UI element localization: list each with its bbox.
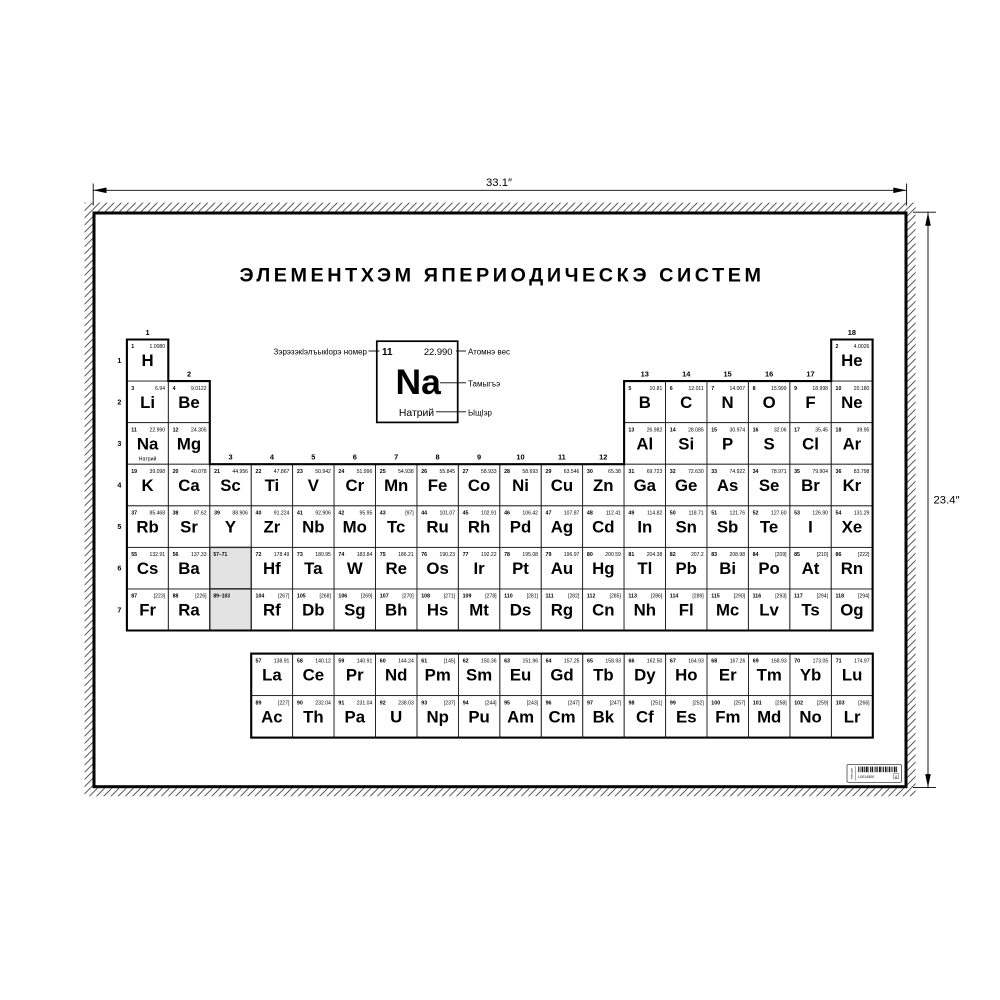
svg-text:126.90: 126.90	[812, 511, 828, 517]
svg-text:7: 7	[711, 386, 714, 392]
svg-text:39.098: 39.098	[150, 469, 166, 475]
svg-text:L0014500: L0014500	[858, 775, 874, 779]
svg-text:39.95: 39.95	[857, 427, 870, 433]
svg-text:[269]: [269]	[361, 594, 373, 600]
svg-text:1: 1	[117, 356, 121, 365]
svg-text:95.95: 95.95	[360, 511, 373, 517]
svg-text:Cu: Cu	[551, 476, 573, 495]
svg-text:40: 40	[256, 511, 262, 517]
svg-text:H: H	[142, 351, 154, 370]
svg-text:Pr: Pr	[346, 665, 364, 684]
svg-text:150.36: 150.36	[481, 658, 497, 664]
svg-text:Cl: Cl	[802, 434, 819, 453]
svg-text:[290]: [290]	[734, 594, 746, 600]
svg-text:Rn: Rn	[841, 559, 863, 578]
svg-text:79.904: 79.904	[812, 469, 828, 475]
svg-text:23: 23	[297, 469, 303, 475]
svg-text:60: 60	[380, 658, 386, 664]
svg-text:Тамыгъэ: Тамыгъэ	[468, 380, 500, 389]
svg-text:9: 9	[477, 453, 481, 462]
svg-text:F: F	[805, 393, 815, 412]
svg-text:Pt: Pt	[512, 559, 529, 578]
svg-text:Br: Br	[801, 476, 820, 495]
svg-text:50: 50	[670, 511, 676, 517]
svg-text:W: W	[347, 559, 363, 578]
svg-text:45: 45	[463, 511, 469, 517]
svg-text:[286]: [286]	[651, 594, 663, 600]
svg-text:Bi: Bi	[719, 559, 736, 578]
svg-text:87: 87	[131, 594, 137, 600]
svg-text:Og: Og	[840, 601, 863, 620]
svg-text:30.974: 30.974	[730, 427, 746, 433]
svg-text:192.22: 192.22	[481, 552, 497, 558]
svg-text:Tm: Tm	[757, 665, 782, 684]
svg-text:85: 85	[794, 552, 800, 558]
svg-text:Yb: Yb	[800, 665, 821, 684]
svg-text:Ru: Ru	[426, 518, 448, 537]
svg-text:111: 111	[546, 594, 554, 600]
svg-text:55: 55	[131, 552, 137, 558]
svg-text:84: 84	[753, 552, 759, 558]
svg-text:[258]: [258]	[775, 700, 787, 706]
svg-text:78.971: 78.971	[771, 469, 787, 475]
svg-text:[222]: [222]	[858, 552, 870, 558]
svg-text:Ta: Ta	[304, 559, 323, 578]
svg-text:Fl: Fl	[679, 601, 694, 620]
svg-text:Ca: Ca	[178, 476, 200, 495]
svg-text:116: 116	[753, 594, 762, 600]
svg-text:70: 70	[794, 658, 800, 664]
svg-text:121.76: 121.76	[730, 511, 746, 517]
svg-text:11: 11	[382, 347, 393, 358]
svg-text:10: 10	[516, 453, 524, 462]
svg-text:74.922: 74.922	[730, 469, 746, 475]
svg-text:[289]: [289]	[692, 594, 704, 600]
svg-text:68: 68	[711, 658, 717, 664]
svg-text:Nb: Nb	[302, 518, 324, 537]
svg-text:66: 66	[629, 658, 635, 664]
svg-text:[259]: [259]	[817, 700, 829, 706]
svg-text:64: 64	[546, 658, 552, 664]
svg-text:Pb: Pb	[675, 559, 696, 578]
svg-text:22.990: 22.990	[150, 427, 166, 433]
svg-text:5: 5	[628, 386, 631, 392]
svg-text:58: 58	[297, 658, 303, 664]
svg-text:Ыщlэр: Ыщlэр	[468, 409, 493, 418]
svg-text:158.93: 158.93	[605, 658, 621, 664]
svg-text:103: 103	[836, 700, 845, 706]
svg-text:[257]: [257]	[734, 700, 746, 706]
svg-text:7: 7	[394, 453, 398, 462]
svg-text:51: 51	[711, 511, 717, 517]
svg-text:17: 17	[794, 427, 800, 433]
svg-text:63.546: 63.546	[564, 469, 580, 475]
svg-text:118: 118	[836, 594, 845, 600]
svg-text:Sm: Sm	[466, 665, 492, 684]
svg-text:V: V	[308, 476, 320, 495]
svg-text:[266]: [266]	[858, 700, 870, 706]
svg-text:As: As	[717, 476, 738, 495]
svg-text:[252]: [252]	[692, 700, 704, 706]
svg-text:[281]: [281]	[527, 594, 539, 600]
svg-text:12.011: 12.011	[688, 386, 703, 392]
svg-text:Nh: Nh	[634, 601, 656, 620]
svg-text:Si: Si	[678, 434, 694, 453]
svg-text:13: 13	[628, 427, 634, 433]
svg-text:Зэрэзэкlэлъыкlорэ номер: Зэрэзэкlэлъыкlорэ номер	[274, 348, 368, 357]
svg-text:58.933: 58.933	[481, 469, 497, 475]
svg-text:33: 33	[711, 469, 717, 475]
svg-text:57: 57	[256, 658, 262, 664]
svg-text:89–103: 89–103	[213, 594, 230, 600]
svg-text:Cm: Cm	[548, 707, 575, 726]
svg-text:47: 47	[546, 511, 552, 517]
svg-text:127.60: 127.60	[771, 511, 787, 517]
svg-text:Na: Na	[396, 362, 442, 402]
svg-text:54: 54	[836, 511, 842, 517]
svg-text:Pu: Pu	[468, 707, 489, 726]
svg-text:He: He	[841, 351, 862, 370]
svg-text:71: 71	[836, 658, 842, 664]
svg-text:238.03: 238.03	[398, 700, 414, 706]
svg-text:96: 96	[546, 700, 552, 706]
svg-text:La: La	[262, 665, 282, 684]
svg-text:115: 115	[711, 594, 720, 600]
svg-text:102.91: 102.91	[481, 511, 497, 517]
svg-text:Gd: Gd	[550, 665, 573, 684]
svg-text:Ne: Ne	[841, 393, 862, 412]
svg-text:U: U	[390, 707, 402, 726]
svg-text:49: 49	[628, 511, 634, 517]
svg-text:Na: Na	[137, 434, 159, 453]
svg-text:Ni: Ni	[512, 476, 529, 495]
svg-text:Cr: Cr	[345, 476, 364, 495]
svg-text:200.59: 200.59	[605, 552, 621, 558]
svg-text:6: 6	[670, 386, 673, 392]
svg-text:Dy: Dy	[634, 665, 656, 684]
svg-text:32.06: 32.06	[774, 427, 787, 433]
svg-text:5: 5	[117, 522, 121, 531]
svg-text:Te: Te	[760, 518, 778, 537]
svg-text:24.305: 24.305	[191, 427, 207, 433]
svg-text:8: 8	[753, 386, 756, 392]
svg-text:77: 77	[463, 552, 469, 558]
svg-text:101.07: 101.07	[440, 511, 456, 517]
svg-text:Y: Y	[225, 518, 236, 537]
svg-text:K: K	[142, 476, 154, 495]
svg-text:11: 11	[131, 427, 137, 433]
svg-text:Ts: Ts	[801, 601, 819, 620]
svg-text:No: No	[799, 707, 821, 726]
svg-text:barcode: barcode	[849, 768, 853, 779]
svg-text:168.93: 168.93	[771, 658, 787, 664]
svg-text:59: 59	[338, 658, 344, 664]
svg-text:30: 30	[587, 469, 593, 475]
svg-text:58.693: 58.693	[522, 469, 538, 475]
svg-text:72: 72	[256, 552, 262, 558]
svg-text:118.71: 118.71	[688, 511, 703, 517]
svg-text:5: 5	[311, 453, 315, 462]
svg-text:Au: Au	[551, 559, 573, 578]
svg-text:35.45: 35.45	[815, 427, 828, 433]
svg-text:Bh: Bh	[385, 601, 407, 620]
svg-text:[237]: [237]	[444, 700, 456, 706]
svg-text:51.996: 51.996	[357, 469, 373, 475]
svg-text:Cf: Cf	[636, 707, 654, 726]
svg-text:144.24: 144.24	[398, 658, 414, 664]
svg-text:20.180: 20.180	[854, 386, 870, 392]
svg-text:[251]: [251]	[651, 700, 663, 706]
svg-text:117: 117	[794, 594, 803, 600]
svg-text:26.982: 26.982	[647, 427, 663, 433]
svg-text:Fm: Fm	[715, 707, 740, 726]
svg-text:Sc: Sc	[220, 476, 241, 495]
svg-text:6: 6	[117, 564, 121, 573]
svg-text:Se: Se	[759, 476, 780, 495]
svg-text:112: 112	[587, 594, 596, 600]
svg-text:Co: Co	[468, 476, 490, 495]
svg-text:15: 15	[711, 427, 717, 433]
svg-text:Ho: Ho	[675, 665, 697, 684]
svg-text:174.97: 174.97	[854, 658, 870, 664]
svg-text:108: 108	[421, 594, 430, 600]
svg-text:1: 1	[131, 344, 134, 350]
svg-text:93: 93	[421, 700, 427, 706]
svg-text:178.49: 178.49	[274, 552, 290, 558]
svg-text:44: 44	[421, 511, 427, 517]
svg-text:Ir: Ir	[473, 559, 485, 578]
svg-text:Натрий: Натрий	[399, 408, 434, 419]
svg-text:132.91: 132.91	[150, 552, 166, 558]
svg-text:[267]: [267]	[278, 594, 290, 600]
svg-text:[282]: [282]	[568, 594, 580, 600]
svg-text:12: 12	[599, 453, 607, 462]
svg-text:Li: Li	[140, 393, 155, 412]
svg-text:29: 29	[546, 469, 552, 475]
svg-text:[226]: [226]	[195, 594, 207, 600]
svg-text:109: 109	[463, 594, 472, 600]
svg-text:Rh: Rh	[468, 518, 490, 537]
svg-text:Am: Am	[507, 707, 534, 726]
svg-text:80: 80	[587, 552, 593, 558]
svg-text:Ba: Ba	[178, 559, 200, 578]
svg-text:Hg: Hg	[592, 559, 614, 578]
svg-text:Sb: Sb	[717, 518, 738, 537]
svg-text:P: P	[722, 434, 733, 453]
svg-text:114.82: 114.82	[647, 511, 662, 517]
svg-text:79: 79	[546, 552, 552, 558]
svg-text:16: 16	[753, 427, 759, 433]
svg-text:Mt: Mt	[469, 601, 489, 620]
svg-text:11: 11	[558, 453, 566, 462]
svg-text:3: 3	[117, 439, 121, 448]
svg-text:232.04: 232.04	[315, 700, 331, 706]
svg-text:Lv: Lv	[759, 601, 779, 620]
svg-text:6: 6	[353, 453, 357, 462]
svg-text:92.906: 92.906	[315, 511, 331, 517]
svg-text:91: 91	[338, 700, 344, 706]
svg-text:151.96: 151.96	[523, 658, 539, 664]
svg-text:Tb: Tb	[593, 665, 614, 684]
svg-text:[145]: [145]	[444, 658, 456, 664]
svg-text:Ac: Ac	[261, 707, 282, 726]
svg-text:106.42: 106.42	[522, 511, 538, 517]
svg-text:86: 86	[836, 552, 842, 558]
svg-text:4.0026: 4.0026	[854, 344, 870, 350]
svg-text:48: 48	[587, 511, 593, 517]
svg-text:35: 35	[794, 469, 800, 475]
svg-text:[243]: [243]	[527, 700, 539, 706]
svg-text:41: 41	[297, 511, 303, 517]
svg-text:C: C	[680, 393, 692, 412]
svg-text:106: 106	[338, 594, 347, 600]
svg-text:Sr: Sr	[180, 518, 198, 537]
svg-text:Pm: Pm	[425, 665, 451, 684]
svg-text:I: I	[808, 518, 813, 537]
svg-text:53: 53	[794, 511, 800, 517]
svg-text:Tl: Tl	[637, 559, 652, 578]
svg-text:101: 101	[753, 700, 762, 706]
svg-text:73: 73	[297, 552, 303, 558]
svg-text:Zn: Zn	[593, 476, 614, 495]
svg-text:Rf: Rf	[263, 601, 281, 620]
svg-text:[97]: [97]	[405, 511, 414, 517]
svg-text:Sn: Sn	[675, 518, 696, 537]
svg-text:4: 4	[173, 386, 176, 392]
svg-text:6.94: 6.94	[155, 386, 165, 392]
svg-text:21: 21	[214, 469, 220, 475]
svg-text:O: O	[763, 393, 776, 412]
svg-text:Ga: Ga	[634, 476, 657, 495]
svg-text:36: 36	[836, 469, 842, 475]
svg-text:[293]: [293]	[775, 594, 787, 600]
svg-text:89: 89	[256, 700, 262, 706]
svg-text:164.93: 164.93	[688, 658, 704, 664]
svg-text:15.999: 15.999	[771, 386, 787, 392]
svg-text:107.87: 107.87	[564, 511, 580, 517]
svg-text:Pa: Pa	[345, 707, 366, 726]
svg-text:98: 98	[629, 700, 635, 706]
svg-text:Th: Th	[303, 707, 324, 726]
svg-text:37: 37	[131, 511, 137, 517]
svg-text:34: 34	[753, 469, 759, 475]
svg-text:167.26: 167.26	[730, 658, 746, 664]
svg-text:13: 13	[641, 370, 649, 379]
svg-text:69.723: 69.723	[647, 469, 663, 475]
svg-text:9: 9	[794, 386, 797, 392]
svg-text:Zr: Zr	[264, 518, 281, 537]
svg-text:At: At	[802, 559, 820, 578]
svg-text:31: 31	[628, 469, 634, 475]
svg-text:14: 14	[670, 427, 676, 433]
svg-text:[244]: [244]	[485, 700, 497, 706]
svg-text:14: 14	[682, 370, 691, 379]
svg-text:1: 1	[146, 328, 150, 337]
svg-text:140.12: 140.12	[315, 658, 331, 664]
svg-text:[294]: [294]	[817, 594, 829, 600]
svg-text:Md: Md	[757, 707, 781, 726]
svg-text:Ti: Ti	[265, 476, 280, 495]
svg-text:12: 12	[173, 427, 179, 433]
svg-text:27: 27	[463, 469, 469, 475]
svg-text:Os: Os	[426, 559, 448, 578]
svg-text:162.50: 162.50	[647, 658, 663, 664]
svg-text:32: 32	[670, 469, 676, 475]
svg-text:186.21: 186.21	[398, 552, 414, 558]
svg-text:25: 25	[380, 469, 386, 475]
svg-text:19: 19	[131, 469, 137, 475]
svg-text:97: 97	[587, 700, 593, 706]
svg-text:Атомнэ вес: Атомнэ вес	[468, 348, 510, 357]
svg-text:95: 95	[504, 700, 510, 706]
svg-text:18.998: 18.998	[812, 386, 828, 392]
svg-text:44.956: 44.956	[232, 469, 248, 475]
svg-text:17: 17	[806, 370, 814, 379]
svg-text:3: 3	[131, 386, 134, 392]
svg-text:62: 62	[463, 658, 469, 664]
svg-text:78: 78	[504, 552, 510, 558]
svg-text:[227]: [227]	[278, 700, 290, 706]
svg-text:173.05: 173.05	[813, 658, 829, 664]
svg-text:[271]: [271]	[444, 594, 456, 600]
svg-text:105: 105	[297, 594, 306, 600]
svg-text:15: 15	[723, 370, 731, 379]
svg-text:Al: Al	[636, 434, 653, 453]
svg-text:40.078: 40.078	[191, 469, 207, 475]
svg-text:Np: Np	[427, 707, 449, 726]
svg-text:46: 46	[504, 511, 510, 517]
svg-text:74: 74	[338, 552, 344, 558]
svg-text:[209]: [209]	[775, 552, 787, 558]
svg-text:85.468: 85.468	[150, 511, 166, 517]
svg-text:28: 28	[504, 469, 510, 475]
svg-text:63: 63	[504, 658, 510, 664]
svg-text:8: 8	[436, 453, 440, 462]
svg-text:Ce: Ce	[303, 665, 324, 684]
svg-text:107: 107	[380, 594, 389, 600]
svg-text:99: 99	[670, 700, 676, 706]
svg-text:[210]: [210]	[817, 552, 829, 558]
svg-text:157.25: 157.25	[564, 658, 580, 664]
svg-text:Cs: Cs	[137, 559, 158, 578]
svg-text:110: 110	[504, 594, 513, 600]
svg-text:3: 3	[228, 453, 232, 462]
svg-text:Mg: Mg	[177, 434, 201, 453]
svg-text:[268]: [268]	[320, 594, 332, 600]
svg-text:Ge: Ge	[675, 476, 697, 495]
svg-text:88.906: 88.906	[232, 511, 248, 517]
svg-text:2: 2	[187, 370, 191, 379]
svg-text:Po: Po	[758, 559, 779, 578]
svg-text:23.4″: 23.4″	[934, 495, 960, 507]
svg-text:Mo: Mo	[343, 518, 367, 537]
svg-text:[294]: [294]	[858, 594, 870, 600]
svg-text:Rg: Rg	[551, 601, 573, 620]
svg-text:Rb: Rb	[136, 518, 158, 537]
svg-text:65: 65	[587, 658, 593, 664]
svg-text:9.0122: 9.0122	[191, 386, 207, 392]
svg-text:100: 100	[711, 700, 720, 706]
svg-text:137.33: 137.33	[191, 552, 207, 558]
svg-text:Ds: Ds	[510, 601, 531, 620]
svg-text:88: 88	[173, 594, 179, 600]
svg-text:94: 94	[463, 700, 469, 706]
svg-text:140.91: 140.91	[357, 658, 373, 664]
svg-text:67: 67	[670, 658, 676, 664]
svg-text:138.91: 138.91	[274, 658, 290, 664]
svg-text:10.81: 10.81	[650, 386, 663, 392]
svg-text:76: 76	[421, 552, 427, 558]
